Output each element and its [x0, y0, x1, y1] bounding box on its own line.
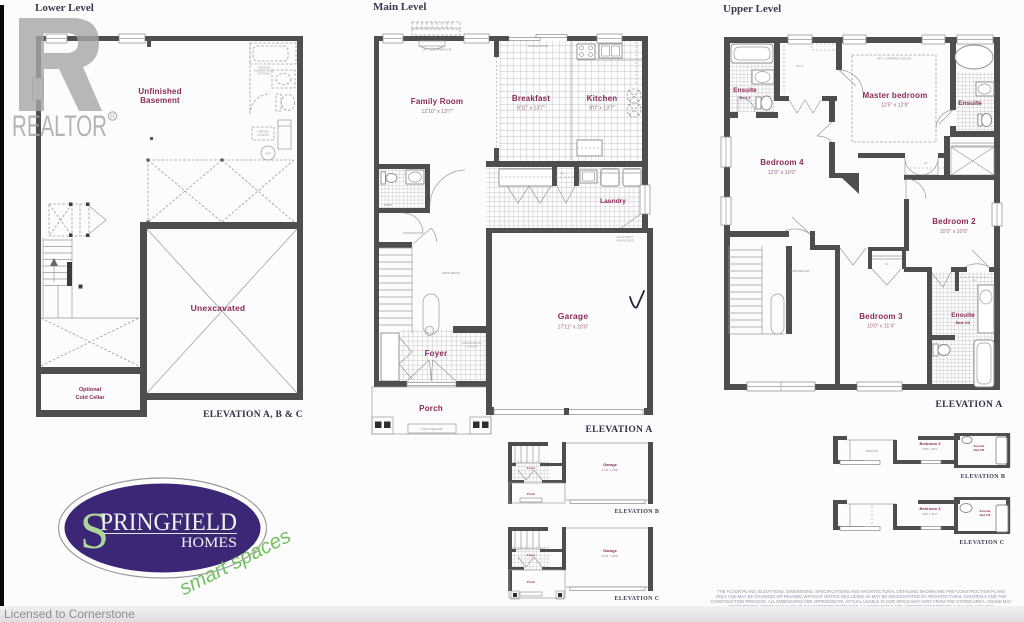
svg-text:ELEVATION C: ELEVATION C [614, 596, 659, 602]
svg-text:Garage: Garage [603, 462, 618, 467]
svg-text:ELEVATION A, B & C: ELEVATION A, B & C [203, 410, 303, 420]
svg-text:PWDR: PWDR [384, 203, 393, 207]
svg-text:CL: CL [972, 278, 976, 282]
svg-text:Porch: Porch [527, 580, 536, 584]
svg-text:Bed 2/3: Bed 2/3 [956, 320, 971, 325]
svg-text:8'11" x 13'7": 8'11" x 13'7" [517, 106, 545, 112]
svg-text:CL: CL [924, 161, 928, 165]
svg-text:Unexcavated: Unexcavated [191, 303, 246, 313]
svg-text:12'0" x 10'0": 12'0" x 10'0" [768, 170, 797, 176]
svg-text:HOMES: HOMES [181, 535, 237, 551]
svg-text:Breakfast: Breakfast [512, 94, 550, 103]
svg-text:Foyer: Foyer [527, 553, 536, 557]
svg-text:Unfinished: Unfinished [138, 87, 181, 96]
svg-text:ELEVATION C: ELEVATION C [959, 540, 1004, 546]
svg-text:Main Level: Main Level [373, 1, 426, 13]
svg-text:ROUGH-IN: ROUGH-IN [258, 68, 270, 70]
svg-text:Ensuite: Ensuite [958, 100, 982, 107]
svg-text:Bed 2/3: Bed 2/3 [980, 513, 991, 517]
svg-text:Bedroom 2: Bedroom 2 [932, 217, 976, 226]
svg-text:REALTOR: REALTOR [12, 110, 107, 143]
svg-text:Family Room: Family Room [411, 97, 463, 106]
svg-text:17'11" x 20'0": 17'11" x 20'0" [558, 325, 589, 331]
svg-text:R: R [110, 114, 115, 121]
svg-text:8'0" x 13'7": 8'0" x 13'7" [589, 106, 615, 112]
svg-text:Upper Level: Upper Level [723, 3, 781, 15]
svg-text:OPT. COFFERED CEILING: OPT. COFFERED CEILING [877, 57, 911, 61]
svg-text:Lower Level: Lower Level [35, 2, 94, 14]
svg-text:OPEN BELOW: OPEN BELOW [791, 269, 810, 273]
svg-text:Bedroom 3: Bedroom 3 [859, 312, 903, 321]
svg-text:IN FOYER: IN FOYER [467, 347, 478, 349]
svg-text:Bedroom 3: Bedroom 3 [920, 506, 942, 511]
svg-text:Porch: Porch [527, 492, 536, 496]
svg-text:10'0" x 11'4": 10'0" x 11'4" [867, 324, 895, 330]
svg-text:Cold Cellar: Cold Cellar [75, 395, 105, 401]
svg-text:Master bedroom: Master bedroom [862, 91, 927, 100]
svg-text:BASEMENT BATH: BASEMENT BATH [254, 70, 274, 73]
svg-text:ELEVATION A: ELEVATION A [585, 425, 652, 435]
svg-text:Foyer: Foyer [425, 349, 448, 358]
svg-text:17'11" x 20'0": 17'11" x 20'0" [602, 554, 619, 558]
svg-text:ELEVATION B: ELEVATION B [961, 474, 1006, 480]
svg-text:CL: CL [560, 171, 564, 175]
svg-text:Ensuite: Ensuite [733, 87, 757, 94]
svg-text:10'0" x 11'4": 10'0" x 11'4" [922, 447, 937, 451]
svg-text:(OPTIONAL): (OPTIONAL) [257, 73, 270, 76]
svg-text:Licensed to Cornerstone: Licensed to Cornerstone [4, 607, 135, 621]
svg-text:Optional: Optional [79, 387, 102, 393]
svg-text:Garage: Garage [558, 311, 589, 321]
svg-text:CL: CL [885, 262, 889, 266]
svg-text:BEDROOM: BEDROOM [866, 451, 878, 453]
svg-text:12'5" x 12'8": 12'5" x 12'8" [881, 103, 910, 109]
svg-text:PRINGFIELD: PRINGFIELD [100, 509, 237, 536]
svg-text:Basement: Basement [140, 96, 180, 105]
svg-text:Bedroom 3: Bedroom 3 [920, 441, 942, 446]
svg-text:Foyer: Foyer [527, 466, 536, 470]
svg-text:Ensuite: Ensuite [951, 312, 975, 319]
svg-text:SLIDING DOOR: SLIDING DOOR [528, 44, 548, 48]
svg-text:WAFFLE CEILING: WAFFLE CEILING [462, 342, 481, 345]
svg-text:Laundry: Laundry [600, 198, 626, 205]
svg-text:HWT: HWT [265, 154, 271, 156]
svg-text:LOCATION: LOCATION [257, 134, 269, 137]
svg-text:GARAGE DOOR: GARAGE DOOR [616, 240, 634, 243]
svg-text:W.I.C.: W.I.C. [796, 64, 804, 68]
svg-text:Garage: Garage [603, 548, 618, 553]
svg-text:OPT. GAS FIREPLACE: OPT. GAS FIREPLACE [422, 48, 451, 52]
svg-text:FURNACE: FURNACE [257, 131, 269, 134]
svg-text:12'10" x 13'7": 12'10" x 13'7" [421, 109, 452, 115]
svg-text:Bedroom 4: Bedroom 4 [760, 158, 804, 167]
svg-text:STEP AS REQUIRED: STEP AS REQUIRED [421, 428, 444, 431]
svg-text:10'0" x 10'0": 10'0" x 10'0" [940, 229, 969, 235]
svg-text:ELEVATION A: ELEVATION A [935, 400, 1002, 410]
svg-text:10'0" x 11'4": 10'0" x 11'4" [922, 512, 937, 516]
svg-text:OPEN ABOVE: OPEN ABOVE [442, 271, 460, 275]
svg-text:ELEVATION B: ELEVATION B [615, 509, 660, 515]
svg-text:17'11" x 20'0": 17'11" x 20'0" [602, 468, 619, 472]
svg-text:Bed 2/3: Bed 2/3 [974, 448, 985, 452]
svg-text:Porch: Porch [419, 404, 443, 413]
svg-text:COACH WIDTH: COACH WIDTH [617, 236, 634, 239]
svg-text:Kitchen: Kitchen [587, 94, 618, 103]
